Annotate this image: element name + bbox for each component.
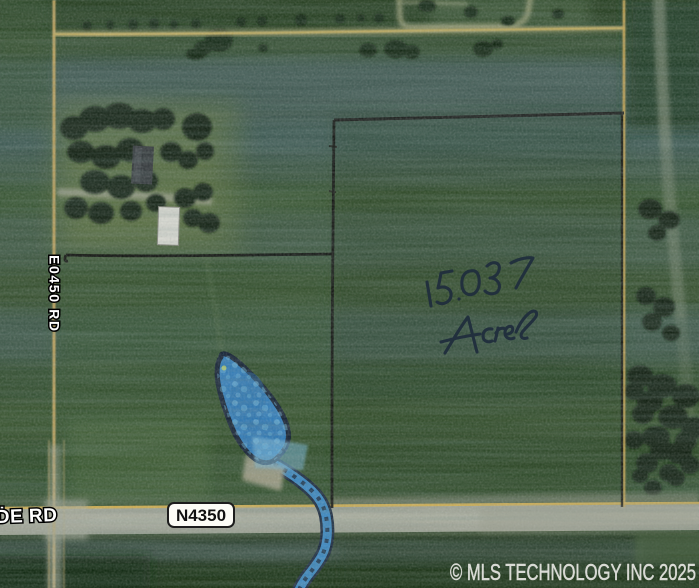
- svg-text:© MLS TECHNOLOGY INC 2025: © MLS TECHNOLOGY INC 2025: [450, 559, 696, 585]
- svg-text:N4350: N4350: [176, 506, 226, 525]
- svg-text:DE RD: DE RD: [0, 505, 58, 528]
